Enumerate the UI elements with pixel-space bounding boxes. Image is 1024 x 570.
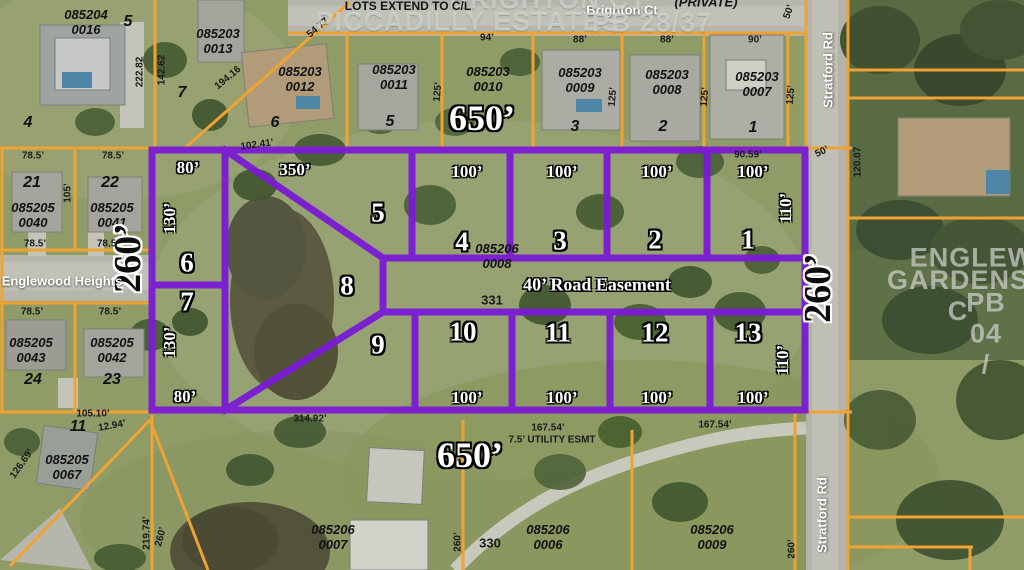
lot-number: 21 [23,174,41,192]
dimension-label: 78.5’ [21,307,43,318]
subject-lot-number: 4 [455,227,469,258]
dimension-label: 100’ [546,388,577,408]
parcel-id: 085205 0040 [11,200,54,230]
dimension-label: 110’ [773,345,793,375]
dimension-label: 125’ [432,82,445,102]
dimension-label: 194.16 [213,64,244,92]
dimension-label: 142.62 [157,55,168,86]
lot-number: 22 [101,174,119,192]
dimension-label: 350’ [279,160,310,180]
street-name: Englewood Heights [2,274,123,289]
dimension-label: 125’ [699,87,712,107]
dimension-label: 78.5’ [24,239,46,250]
dimension-label: 130’ [160,202,180,233]
parcel-id: 085206 0009 [690,522,733,552]
subject-lot-number: 8 [340,271,354,302]
parcel-id: 085203 0007 [735,69,778,99]
dimension-label: 100’ [737,388,768,408]
dimension-label: 260’ [787,539,798,558]
dimension-label: 100’ [737,162,768,182]
parcel-id: 085205 0042 [90,335,133,365]
parcel-id: 085203 0012 [278,64,321,94]
plat-book-reference: PB 04 / [966,288,1006,381]
lot-number: 6 [271,114,280,132]
dimension-label: 102.41’ [240,137,275,153]
subject-lot-number: 9 [371,330,385,361]
dimension-label: 110’ [776,193,796,223]
subject-lot-number: 5 [371,198,385,229]
subject-lot-number: 7 [180,287,194,318]
street-name: Stratford Rd [815,477,830,553]
dimension-label: 650’ [449,97,515,139]
parcel-id: 085203 0010 [466,64,509,94]
dimension-label: 222.82 [135,57,146,88]
parcel-id: 085203 0009 [558,65,601,95]
lot-number: 7 [178,84,187,102]
parcel-id: 085203 0008 [645,67,688,97]
dimension-label: 100’ [641,162,672,182]
lot-number: 5 [386,113,395,131]
parcel-id: 085203 0013 [196,26,239,56]
utility-easement-label: 7.5’ UTILITY ESMT [508,435,595,446]
subject-lot-number: 3 [553,226,567,257]
lot-number: 23 [103,371,121,389]
dimension-label: 54.77 [305,16,331,41]
dimension-label: 130’ [160,326,180,357]
dimension-label: 78.5’ [97,239,119,250]
dimension-label: 167.54’ [698,420,731,431]
dimension-label: 125’ [607,87,620,107]
dimension-label: 314.92’ [293,414,326,425]
parcel-id: 085205 0041 [90,200,133,230]
dimension-label: 12.94’ [97,418,126,434]
dimension-label: 260’ [796,253,840,323]
lot-number: 11 [70,418,87,436]
subject-lot-number: 1 [741,225,755,256]
dimension-label: 78.5’ [22,151,44,162]
subject-lot-number: 12 [642,318,669,349]
dimension-label: 260’ [453,532,464,551]
dimension-label: 90’ [748,35,762,46]
subject-lot-number: 13 [735,318,762,349]
dimension-label: 330 [479,536,501,551]
plat-street-name: BRIGHTON CT [449,0,647,16]
plat-book-reference: PB 28/37 [592,8,713,39]
subject-parcel-id: 085206 0008 [475,241,518,271]
dimension-label: 50’ [813,144,830,160]
subdivision-name: GARDENS C [887,265,1024,327]
parcel-id: 085205 0067 [45,452,88,482]
map-note: LOTS EXTEND TO C/L [345,0,471,13]
subject-lot-number: 2 [648,225,662,256]
dimension-label: 80’ [177,158,200,178]
parcel-id: 085206 0007 [311,522,354,552]
dimension-label: 100’ [641,388,672,408]
dimension-label: 88’ [660,35,674,46]
dimension-label: 94’ [480,33,494,44]
lot-number: 1 [749,119,758,137]
dimension-label: 167.54’ [531,423,564,434]
dimension-label: 78.5’ [99,307,121,318]
dimension-label: 100’ [546,162,577,182]
dimension-label: 88’ [573,35,587,46]
dimension-label: 80’ [174,387,197,407]
subdivision-name: PICCADILLY ESTATES [315,7,620,38]
dimension-label: 50’ [781,4,796,21]
parcel-id: 085203 0011 [372,62,415,92]
parcel-id: 085206 0006 [526,522,569,552]
lot-number: 3 [571,118,580,136]
dimension-label: 260’ [153,526,169,548]
subject-lot-number: 11 [545,318,571,349]
lot-number: 24 [24,371,42,389]
dimension-label: 260’ [106,223,150,293]
parcel-id: 085204 0016 [64,7,107,37]
dimension-label: 100’ [451,388,482,408]
subdivision-name: ENGLEW [910,243,1024,274]
subject-lot-number: 10 [450,317,477,348]
plat-aerial-map: { "colors":{"parcel_line_orange":"#f0a23… [0,0,1024,570]
dimension-label: 125’ [785,85,798,105]
dimension-label: 126.69’ [8,447,36,481]
lot-number: 4 [24,114,33,132]
map-label-layer: 085204 0016085203 0013085203 0012085203 … [0,0,1024,570]
dimension-label: 78.5’ [102,151,124,162]
dimension-label: 219.74’ [142,516,153,549]
street-name: Stratford Rd [821,32,836,108]
dimension-label: 105.10’ [76,409,109,420]
dimension-label: 650’ [437,434,503,476]
dimension-label: 100’ [451,162,482,182]
road-easement-label: 40’ Road Easement [523,275,671,296]
dimension-label: 120.07 [853,147,864,178]
subject-lot-number: 6 [180,248,194,279]
dimension-label: 90.59’ [734,150,762,161]
lot-number: 2 [659,118,668,136]
dimension-label: 331 [481,293,503,308]
street-annotation: (PRIVATE) [674,0,737,10]
dimension-label: 105’ [63,183,74,202]
lot-number: 5 [124,13,133,31]
parcel-id: 085205 0043 [9,335,52,365]
street-name: Brighton Ct [586,3,657,18]
